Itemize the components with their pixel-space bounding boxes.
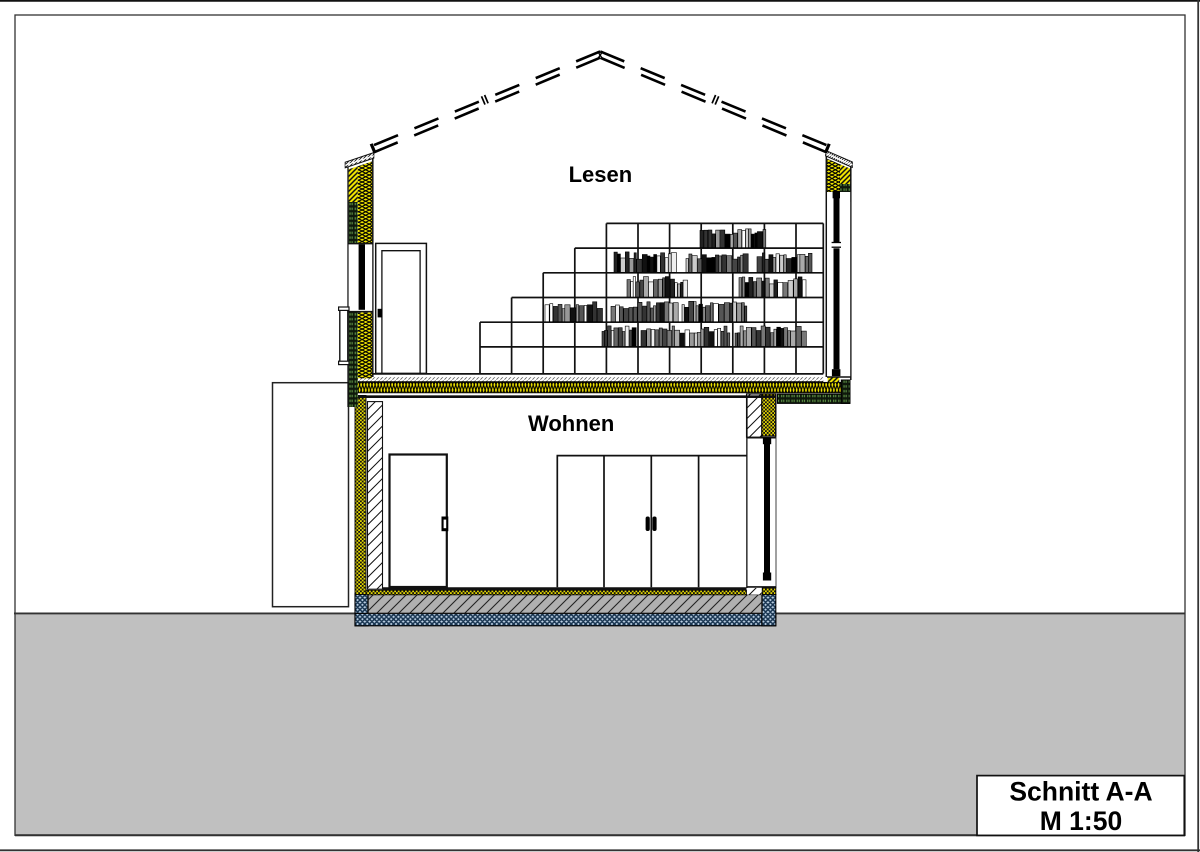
svg-text:Wohnen: Wohnen bbox=[528, 411, 614, 436]
svg-text:Schnitt A-A: Schnitt A-A bbox=[1009, 776, 1152, 806]
svg-text:Lesen: Lesen bbox=[569, 162, 633, 187]
svg-text:M 1:50: M 1:50 bbox=[1040, 806, 1122, 836]
